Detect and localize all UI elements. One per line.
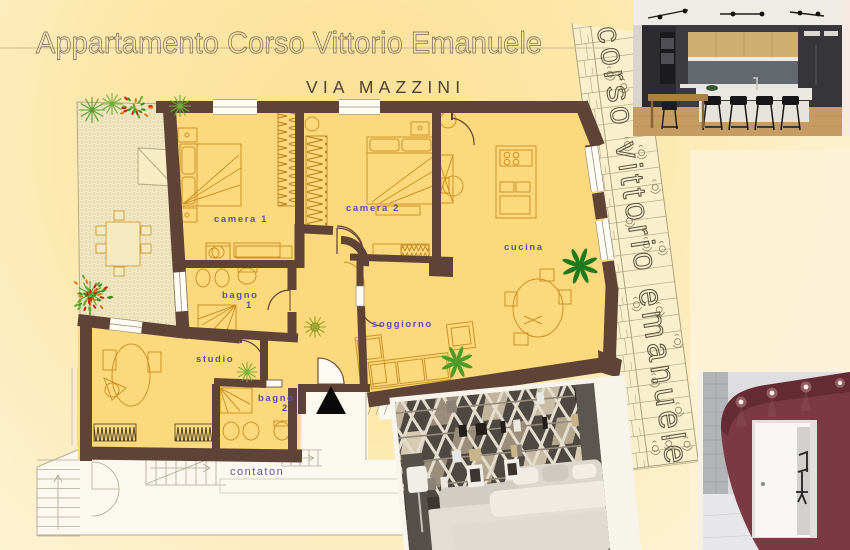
svg-text:soggiorno: soggiorno [372, 319, 433, 330]
svg-text:contaton: contaton [230, 466, 284, 478]
svg-text:bagno: bagno [222, 290, 259, 301]
svg-text:Appartamento Corso Vittorio Em: Appartamento Corso Vittorio Emanuele [36, 25, 542, 60]
svg-text:VIA MAZZINI: VIA MAZZINI [306, 77, 465, 97]
svg-text:2: 2 [282, 403, 289, 414]
svg-text:bagno: bagno [258, 393, 295, 404]
svg-text:camera 1: camera 1 [214, 214, 268, 225]
svg-text:1: 1 [246, 300, 253, 311]
svg-text:studio: studio [196, 354, 234, 365]
svg-text:cucina: cucina [504, 242, 544, 253]
svg-text:camera 2: camera 2 [346, 203, 400, 214]
